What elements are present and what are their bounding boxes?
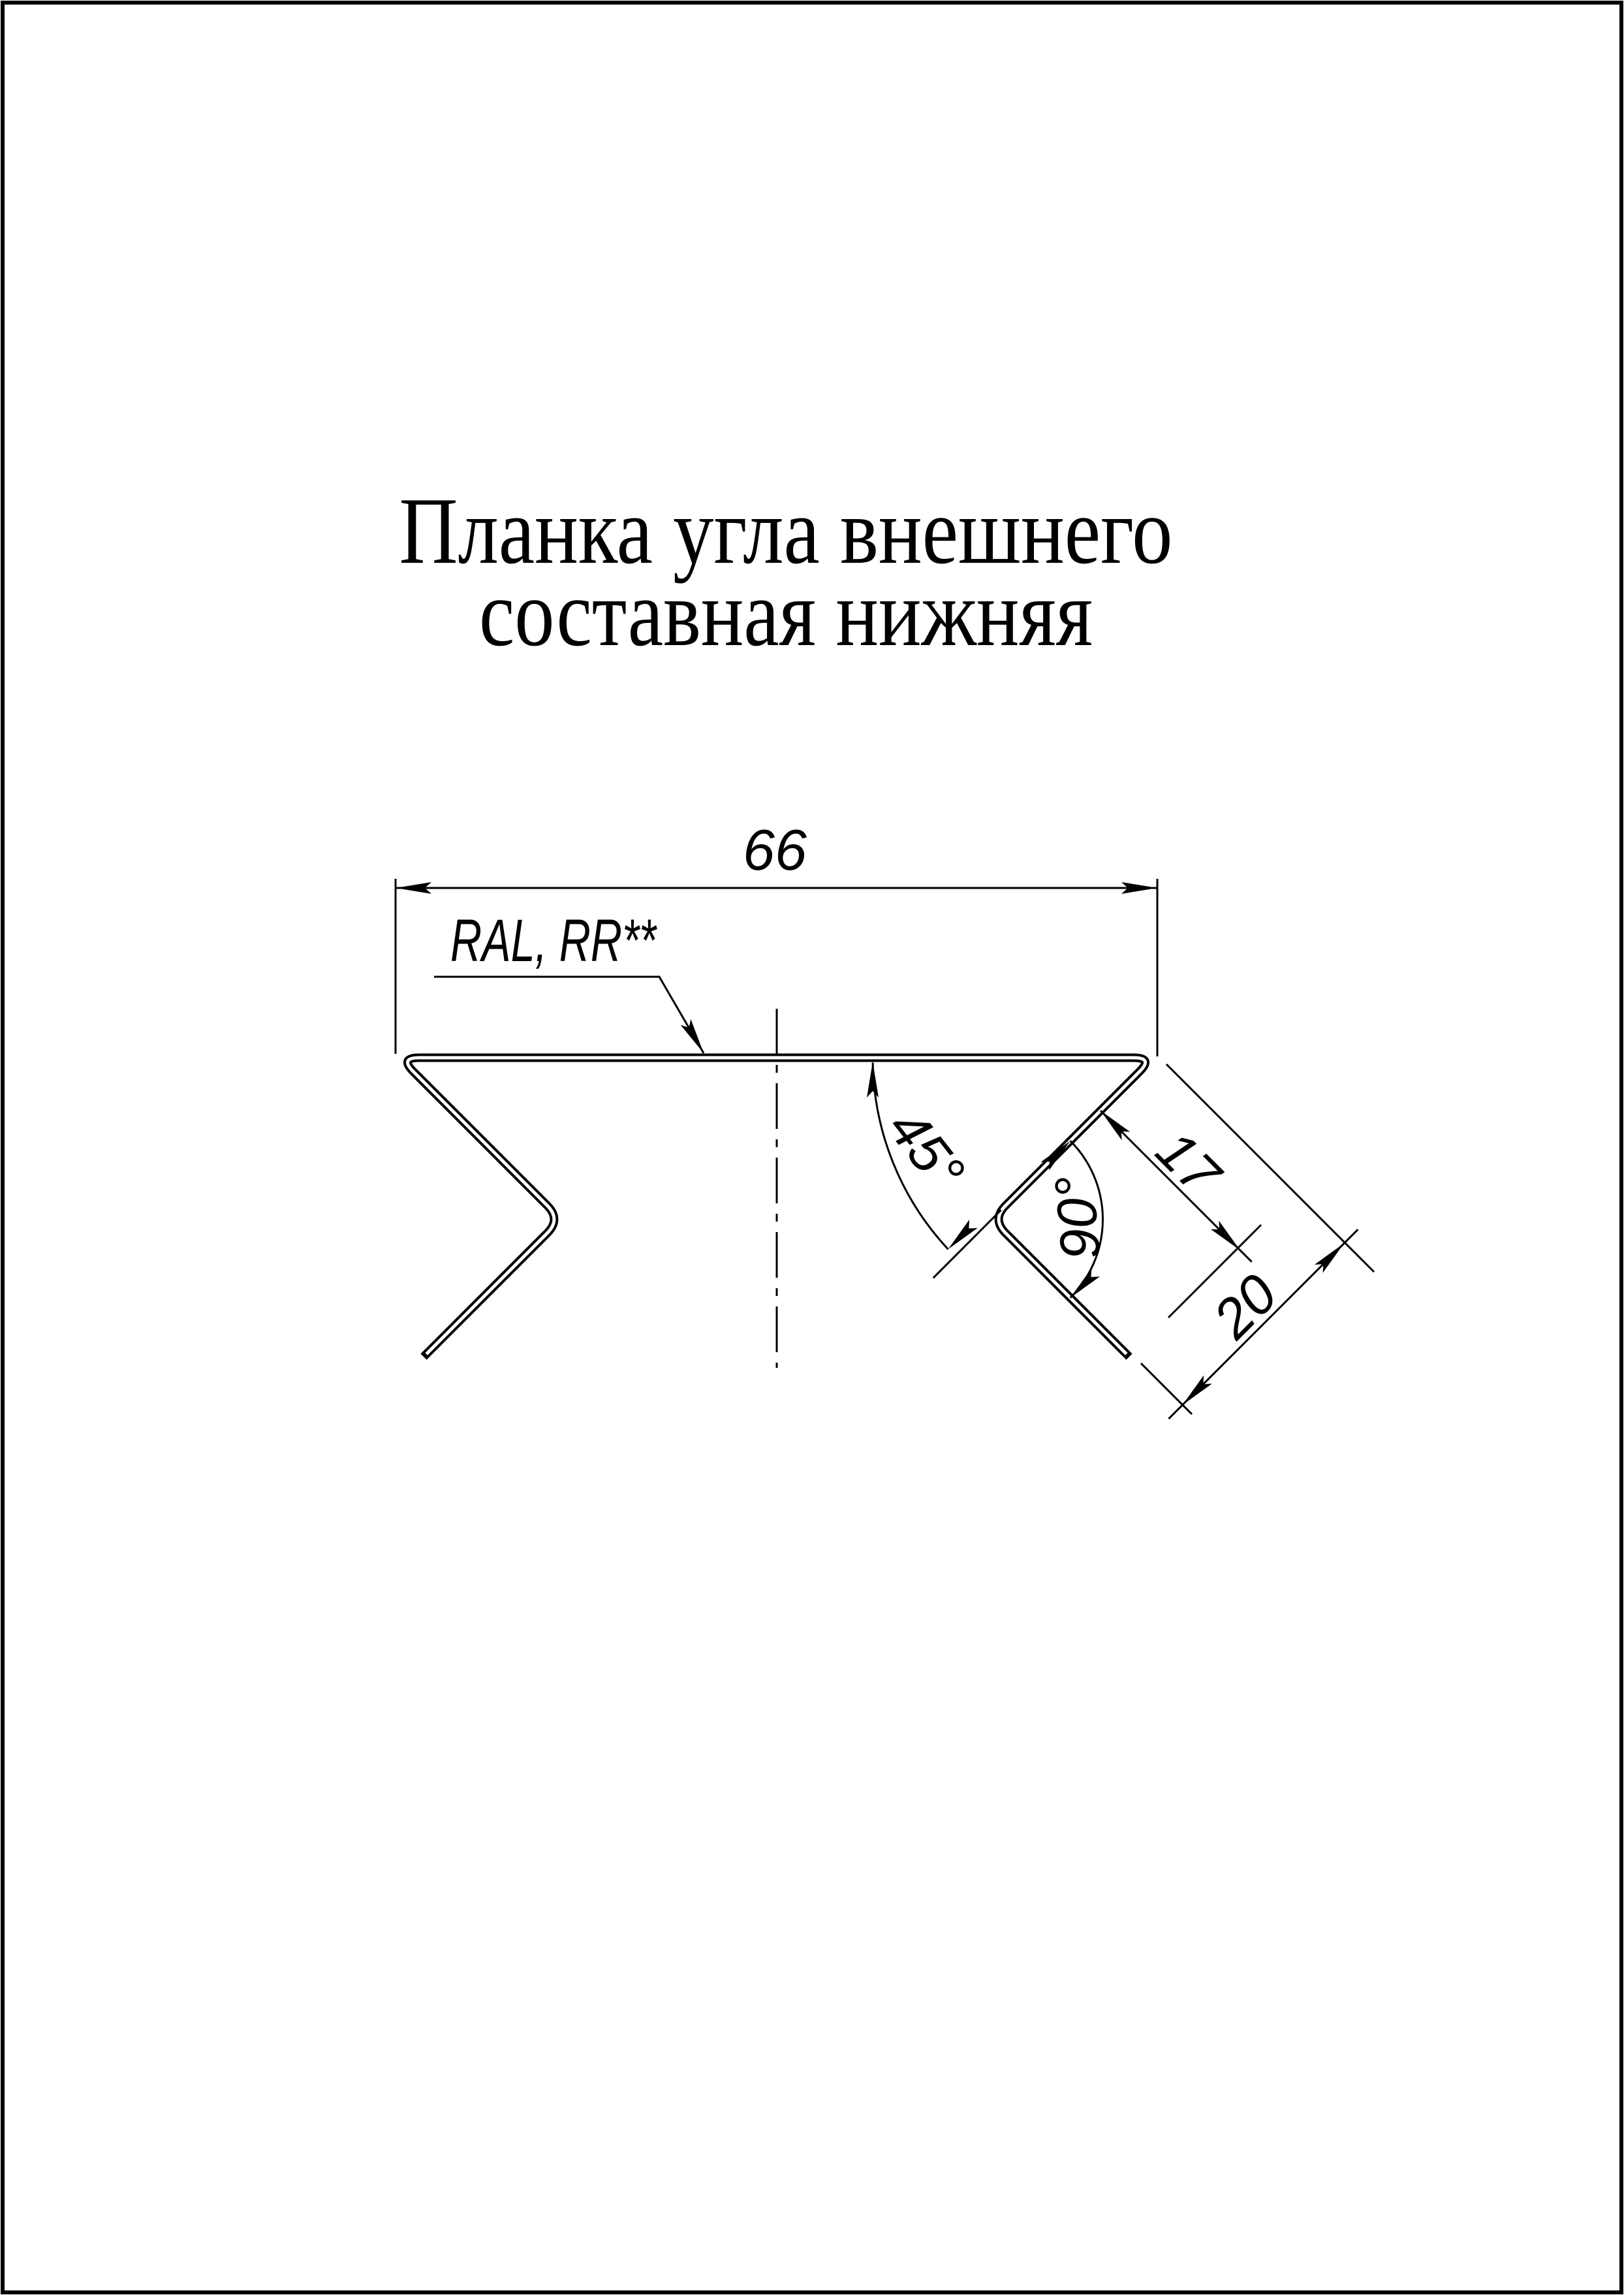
page-title-line2: составная нижняя <box>479 560 1093 666</box>
page-border <box>3 3 1621 2292</box>
arc-arrow-down-icon <box>944 1220 978 1254</box>
extension-line-end <box>1141 1363 1192 1414</box>
technical-drawing: Планка угла внешнего составная нижняя 66… <box>0 0 1624 2295</box>
leader-arrow-icon <box>681 1019 709 1056</box>
arc-arrow-sw-icon <box>1066 1268 1100 1302</box>
dim-length-20: 20 <box>1141 1064 1374 1419</box>
coating-label: RAL, RR** <box>450 908 657 974</box>
dimension-value-width: 66 <box>743 817 807 882</box>
dimension-value-17: 17 <box>1144 1119 1233 1208</box>
dim-angle-45: 45° <box>867 1062 1001 1278</box>
arc-arrow-up-icon <box>867 1062 879 1098</box>
dimension-value-20: 20 <box>1201 1263 1289 1351</box>
drawing-page: Планка угла внешнего составная нижняя 66… <box>0 0 1624 2295</box>
leader-coating: RAL, RR** <box>434 908 709 1056</box>
leader-line <box>434 977 704 1053</box>
drawing-title: Планка угла внешнего составная нижняя <box>399 478 1173 666</box>
dimension-value-angle90: 90° <box>1044 1173 1113 1262</box>
dimension-value-angle45: 45° <box>876 1098 976 1202</box>
